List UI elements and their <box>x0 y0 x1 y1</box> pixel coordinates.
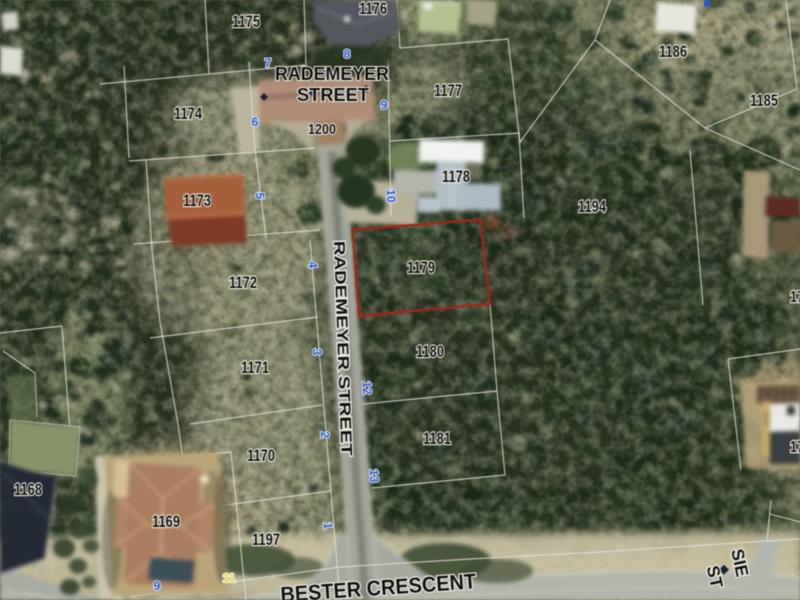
svg-text:1200: 1200 <box>308 121 336 138</box>
svg-text:1175: 1175 <box>232 12 260 31</box>
svg-text:3: 3 <box>310 348 324 355</box>
svg-text:1172: 1172 <box>229 273 257 292</box>
svg-text:1186: 1186 <box>659 42 687 61</box>
svg-text:1169: 1169 <box>152 512 180 531</box>
svg-text:8: 8 <box>344 47 351 61</box>
svg-text:11: 11 <box>223 571 236 585</box>
svg-text:1168: 1168 <box>14 480 42 499</box>
svg-text:10: 10 <box>384 189 398 203</box>
svg-text:17: 17 <box>790 289 800 306</box>
svg-text:13: 13 <box>367 469 381 483</box>
svg-text:1185: 1185 <box>750 91 778 110</box>
svg-text:1197: 1197 <box>252 530 280 549</box>
svg-text:1181: 1181 <box>423 429 451 448</box>
svg-text:1170: 1170 <box>247 446 275 465</box>
svg-text:1180: 1180 <box>416 342 444 361</box>
svg-text:1194: 1194 <box>578 197 606 216</box>
svg-text:1174: 1174 <box>174 104 202 123</box>
svg-text:1: 1 <box>321 522 335 529</box>
svg-text:RADEMEYER: RADEMEYER <box>275 63 389 84</box>
svg-text:12: 12 <box>360 381 374 395</box>
svg-text:2: 2 <box>318 431 332 438</box>
svg-text:6: 6 <box>252 115 259 129</box>
svg-text:7: 7 <box>265 56 272 70</box>
svg-text:1176: 1176 <box>359 0 387 18</box>
svg-text:1171: 1171 <box>241 358 269 377</box>
svg-text:STREET: STREET <box>297 84 370 105</box>
svg-text:1173: 1173 <box>183 191 211 210</box>
svg-text:4: 4 <box>306 261 320 268</box>
svg-text:1177: 1177 <box>434 81 462 100</box>
svg-text:17: 17 <box>790 439 800 456</box>
svg-text:1179: 1179 <box>407 258 435 277</box>
svg-text:9: 9 <box>154 579 161 593</box>
svg-text:9: 9 <box>381 98 388 112</box>
svg-text:1178: 1178 <box>442 167 470 186</box>
svg-text:5: 5 <box>253 192 267 199</box>
